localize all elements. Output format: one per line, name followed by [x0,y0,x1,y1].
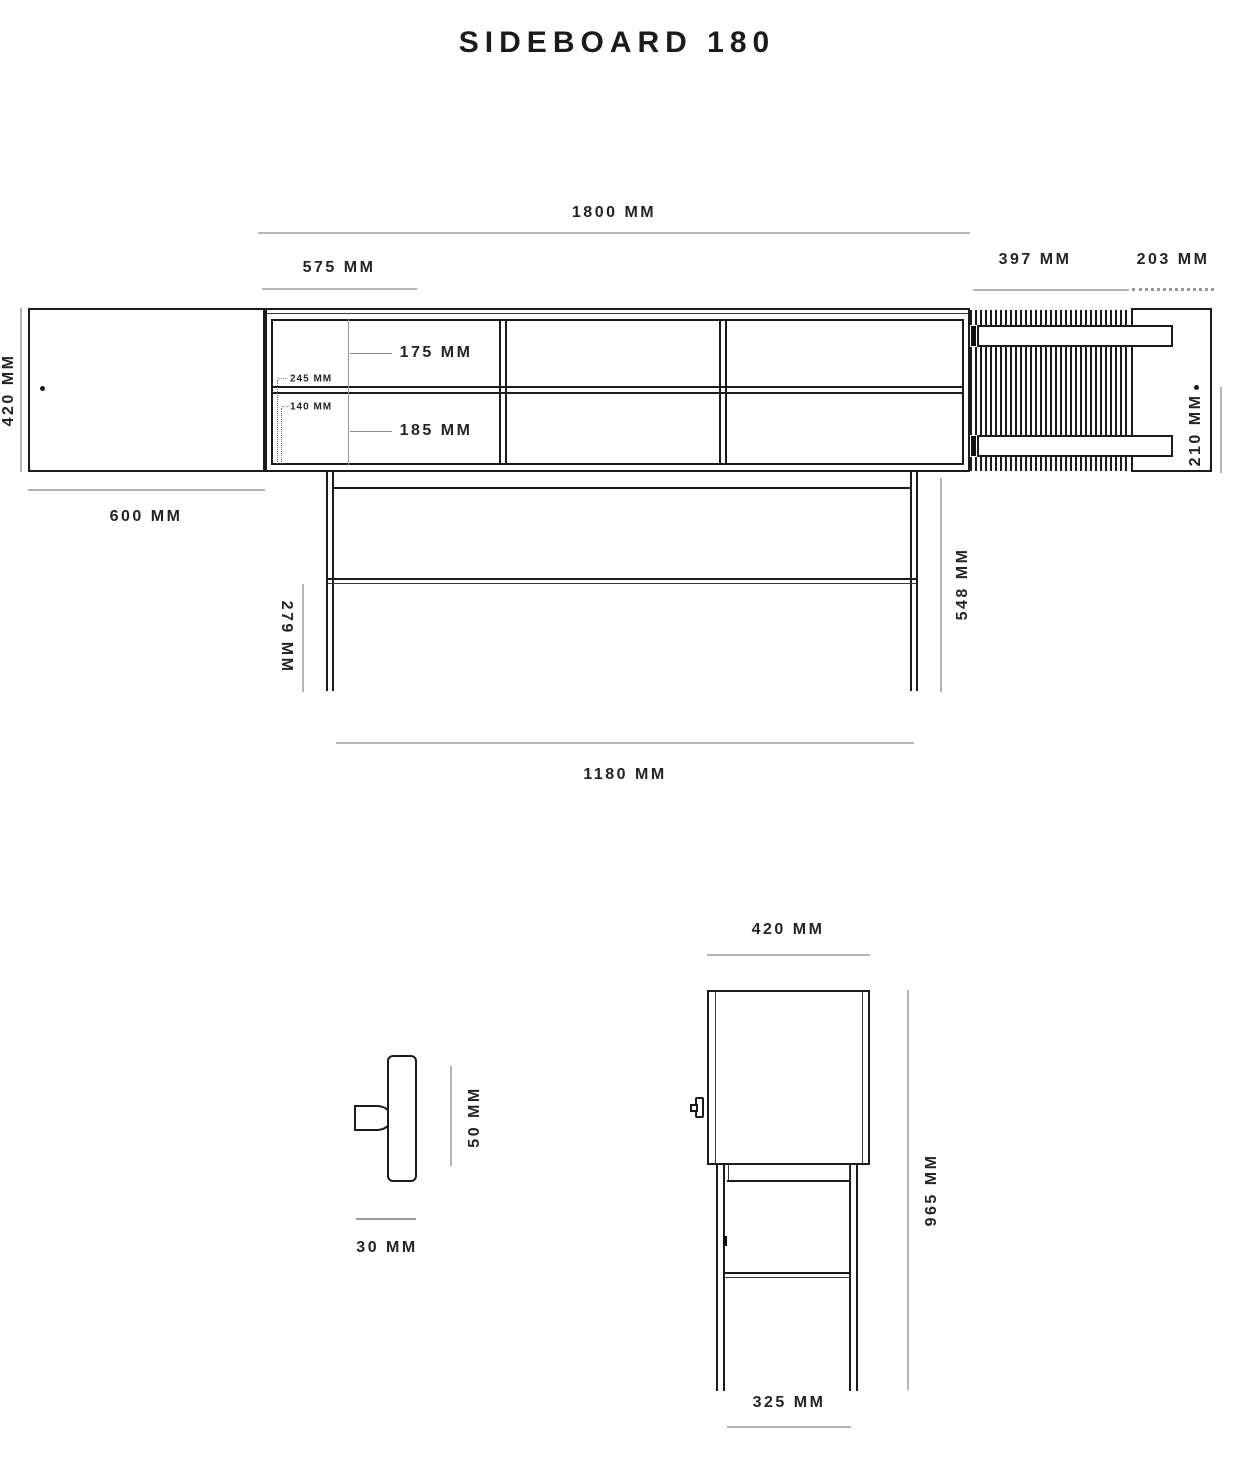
dim-label-hinged-door-width: 600 mm [110,508,183,526]
dim-line-side-base-depth [727,1426,851,1428]
shelf-line-lower [272,392,963,394]
side-cabinet-outline [707,990,870,1165]
dim-label-cabinet-height: 420 mm [0,354,18,427]
divider-light-line [348,319,349,465]
ext-line-depth-lower [281,408,282,464]
side-panel-line-right [862,992,863,1163]
shelf-line-upper [272,386,963,388]
dim-label-side-depth: 420 mm [752,921,825,939]
dim-label-total-height: 965 mm [923,1154,941,1227]
cabinet-top-inner-line [267,313,968,314]
dim-label-door-opening-width: 203 mm [1137,251,1210,269]
dim-line-left-bay-width [262,288,417,290]
divider-1-right-line [505,319,507,465]
door-knob-dot [40,386,45,391]
slat-band-bottom [970,457,1130,471]
hinged-door-panel [28,308,265,472]
slat-band-top [970,310,1130,325]
dim-line-handle-height [450,1066,452,1166]
dim-label-stretcher-height: 279 mm [277,601,295,674]
leader-depth-lower [282,406,290,407]
door-pivot-dot [1194,385,1199,390]
base-stretcher-upper [328,578,916,580]
dim-label-base-width: 1180 mm [583,766,666,784]
dim-label-handle-height: 50 mm [466,1086,484,1147]
side-inset-line-left [728,1165,729,1181]
door-rail-bottom [977,435,1173,457]
leader-upper-shelf [350,353,392,354]
page-title: SIDEBOARD 180 [0,26,1234,60]
dim-line-total-height [907,990,909,1390]
dim-line-hinged-door-width [28,489,265,491]
dim-label-base-height: 548 mm [954,548,972,621]
dim-label-side-base-depth: 325 mm [753,1394,826,1412]
divider-2-left-line [719,319,721,465]
handle-bar-shape [387,1055,417,1182]
door-rail-top [977,325,1173,347]
dim-label-total-width: 1800 mm [572,204,656,222]
ext-line-depth-upper [277,380,278,464]
dim-line-stretcher-height [302,584,304,692]
dim-label-depth-upper: 245 mm [290,374,332,385]
front-leg-left [326,472,334,691]
dim-line-handle-depth [356,1218,416,1220]
dim-label-left-bay-width: 575 mm [303,259,376,277]
rail-end-tick-bottom [971,436,976,456]
base-top-rail [334,487,910,489]
dim-label-lower-shelf: 185 mm [400,422,473,440]
leader-depth-upper [278,378,288,379]
side-leg-back [849,1165,858,1391]
divider-1-left-line [499,319,501,465]
dim-line-slat-door-width [973,289,1129,291]
dim-line-base-width [336,742,914,744]
side-base-top-rail [727,1180,851,1182]
front-leg-right [910,472,918,691]
side-stretcher-lower [725,1277,851,1278]
dim-line-side-depth [707,954,870,956]
side-panel-line-left [715,992,716,1163]
dim-line-total-width [258,232,970,234]
dim-line-cabinet-height [20,308,22,472]
dim-line-door-top-view [1220,387,1222,473]
slat-band-middle [970,347,1130,435]
base-stretcher-lower [328,583,916,584]
dim-line-door-opening-width [1132,288,1214,291]
leader-lower-shelf [350,431,392,432]
side-leg-front [716,1165,725,1391]
divider-2-right-line [725,319,727,465]
dim-label-slat-door-width: 397 mm [999,251,1072,269]
dim-label-upper-shelf: 175 mm [400,344,473,362]
sideboard-dimension-drawing: SIDEBOARD 180 1800 mm 575 mm 397 mm 203 … [0,0,1234,1458]
side-handle-stem [690,1104,698,1112]
dim-line-base-height [940,478,942,692]
dim-label-depth-lower: 140 mm [290,402,332,413]
rail-end-tick-top [971,326,976,346]
dim-label-handle-depth: 30 mm [356,1239,417,1257]
side-stretcher-upper [725,1272,851,1274]
dim-label-door-top-view: 210 mm [1187,394,1205,467]
side-inset-line-right [849,1165,850,1181]
side-leg-joint-tick [723,1236,727,1246]
